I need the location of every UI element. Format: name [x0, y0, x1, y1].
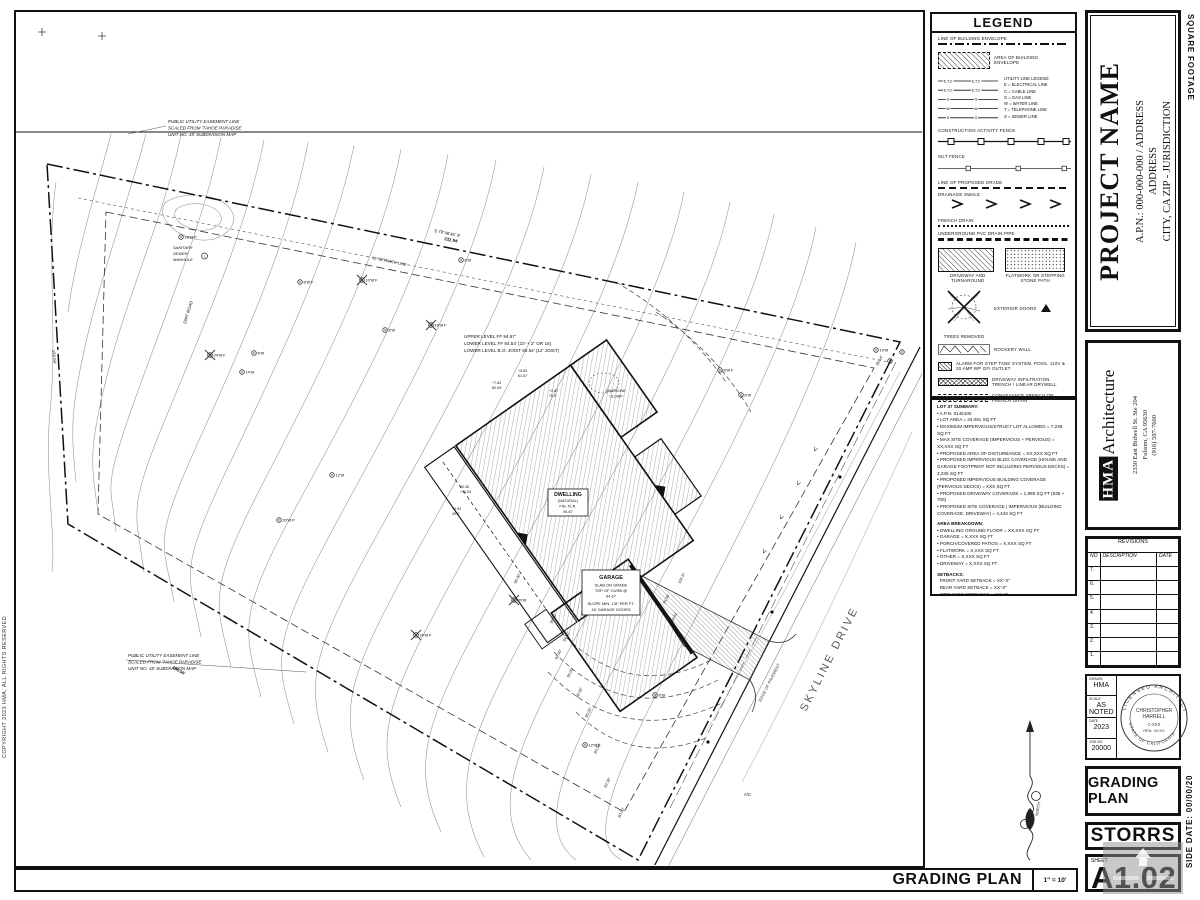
drawing-info-box: DRAWN HMA SCALE AS NOTED DATE 2023 JOB N…	[1085, 674, 1181, 760]
summary-item: • LOT AREA = 34,081 SQ FT	[937, 417, 1070, 424]
revisions-title: REVISIONS	[1088, 539, 1179, 553]
plan-label: S	[203, 255, 205, 259]
plan-label: >	[810, 445, 820, 454]
svg-text:REN. XX/XX: REN. XX/XX	[1143, 729, 1165, 733]
firm-box: HMA Architecture 2330 East Bidwell St. S…	[1085, 340, 1181, 530]
plan-label: SANITARY	[173, 245, 193, 250]
utility-line-tag: G	[947, 98, 950, 102]
revision-row: 3.	[1088, 623, 1179, 637]
legend-item-building-envelope-line: LINE OF BUILDING ENVELOPE	[932, 33, 1075, 45]
firm-phone: (916) 597-7600	[1151, 415, 1158, 456]
contour-lines	[48, 134, 912, 860]
plan-label: LOWER LEVEL B.O. JOIST 93.54' (12' JOIST…	[464, 348, 560, 353]
client-name-box: STORRS	[1085, 822, 1181, 850]
plan-label: +2.87	[549, 389, 558, 393]
plan-label: SCALED FROM 'TAHOE PARADISE	[128, 660, 202, 665]
plan-label: >	[759, 547, 769, 556]
plan-label: SEWER	[173, 251, 188, 256]
alarm-sample	[938, 362, 952, 371]
dashdot-line-sample	[938, 43, 1069, 45]
lot-summary-panel: LOT 37 SUMMARY: • A.P.N. 0145100 • LOT A…	[930, 398, 1077, 596]
building-envelope-line	[98, 212, 874, 812]
silt-fence-sample	[938, 165, 1071, 172]
plan-label: PUBLIC UTILITY EASEMENT LINE	[128, 653, 200, 658]
plan-label: 98.00'	[512, 572, 521, 584]
plan-label: 104.37	[677, 572, 686, 584]
address-line: ADDRESS	[1148, 147, 1159, 195]
plan-label: FIN. FL'R.	[559, 505, 576, 509]
plan-label: 49.9'	[452, 512, 460, 516]
legend-item-trees-doors: TREES REMOVED EXTERIOR DOORS	[932, 286, 1075, 339]
utility-line-tag: G	[975, 98, 978, 102]
tree-label: 6"Ø	[745, 394, 751, 398]
plan-label: 94.67	[563, 510, 573, 514]
utility-line-tag: E,T,C	[972, 89, 981, 93]
plan-label: 15' SETBACK LINE	[372, 255, 408, 267]
edge-label-square-footage: SQUARE FOOTAGE	[1186, 14, 1195, 101]
plan-label: EDGE OF PAVEMENT	[757, 662, 781, 702]
summary-title: LOT 37 SUMMARY:	[937, 404, 1070, 411]
north-arrow: NORTH	[1002, 712, 1058, 864]
plan-label: GARAGE	[599, 575, 623, 581]
summary-item: • PROPOSED SITE COVERAGE | IMPERVIOUS (B…	[937, 504, 1070, 517]
utility-line-tag: W	[974, 107, 978, 111]
legend-item-construction-fence: CONSTRUCTION ACTIVITY FENCE	[932, 125, 1075, 151]
plan-label: 88.00'	[574, 686, 583, 698]
job-field: JOB NO 20000	[1087, 739, 1116, 758]
sheet-title-box: GRADING PLAN	[1085, 766, 1181, 816]
area-item: • DWELLING GROUND FLOOR = XX,XXX SQ FT	[937, 528, 1070, 535]
utility-line-tag: E,T,C	[944, 79, 953, 83]
tree-label: 20"Ø	[518, 599, 527, 603]
tree-label: 10"Ø F	[366, 279, 379, 283]
revisions-table: REVISIONS NO DESCRIPTION DATE 7. 6. 5. 4…	[1085, 536, 1181, 668]
utility-line-tag: E,T,C	[972, 79, 981, 83]
setback-item: SIDE YARD SETBACKS = XX'-X"	[937, 592, 1070, 599]
plan-label: DIRT ROAD	[182, 300, 194, 324]
tree-label: 8"Ø	[465, 259, 471, 263]
summary-item: • MAX SITE COVERAGE (IMPERVIOUS + PERVIO…	[937, 437, 1070, 450]
plan-label: +10.04	[460, 490, 471, 494]
tree-label: 8"Ø F	[304, 281, 314, 285]
legend-title: LEGEND	[932, 14, 1075, 33]
property-boundary	[47, 164, 900, 860]
construction-fence-sample	[938, 137, 1071, 146]
legend-item-alarm: ALARM FOR STEP TANK SYSTEM, POSS. 110V &…	[932, 358, 1075, 371]
legend-item-surfaces: DRIVEWAY AND TURNAROUND FLATWORK OR STEP…	[932, 245, 1075, 283]
plan-label: 16' GARAGE DOORS	[591, 607, 631, 612]
scale-field: SCALE AS NOTED	[1087, 696, 1116, 718]
plan-label: >	[793, 479, 803, 488]
tree-removed-sample	[944, 289, 984, 329]
area-item: • PORCH/COVERED PATIOS = X,XXX SQ FT	[937, 541, 1070, 548]
legend-item-proposed-grade: LINE OF PROPOSED GRADE	[932, 177, 1075, 189]
tree-label: 8"Ø F	[724, 369, 734, 373]
drawing-scale: 1" = 10'	[1032, 870, 1076, 890]
utility-line-tag: E,T,C	[944, 89, 953, 93]
legend-item-rockery: ROCKERY WALL	[932, 341, 1075, 355]
area-item: • FLATWORK = X,XXX SQ FT	[937, 548, 1070, 555]
drawing-title: GRADING PLAN	[882, 870, 1032, 890]
tree-label: 18"Ø P	[185, 236, 198, 240]
plan-label: PUBLIC UTILITY EASEMENT LINE	[168, 119, 240, 124]
revision-row: 6.	[1088, 581, 1179, 595]
survey-tick	[38, 28, 106, 40]
revision-row: 1.	[1088, 651, 1179, 665]
legend-item-french-drain: FRENCH DRAIN	[932, 215, 1075, 228]
drawn-field: DRAWN HMA	[1087, 676, 1116, 696]
firm-name: Architecture	[1099, 370, 1119, 455]
plan-label: 60.36	[460, 485, 469, 489]
tree-label: 24"Ø F	[214, 354, 227, 358]
rockery-sample	[938, 344, 990, 355]
tree-label: 8"Ø	[389, 329, 395, 333]
utility-line-samples: E,T,CE,T,CE,T,CE,T,CGGWWSS	[938, 76, 1000, 122]
tree-label: 6"Ø	[258, 352, 264, 356]
col-description: DESCRIPTION	[1100, 553, 1157, 567]
north-label: NORTH	[1034, 801, 1041, 816]
setback-item: FRONT YARD SETBACK = XX'-X"	[937, 578, 1070, 585]
grading-plan-drawing: PUBLIC UTILITY EASEMENT LINESCALED FROM …	[14, 10, 925, 868]
plan-label: 90.00'	[565, 666, 574, 678]
revision-row: 4.	[1088, 609, 1179, 623]
apn-line: A.P.N.: 000-000-000 / ADDRESS	[1135, 100, 1146, 243]
legend-item-silt-fence: SILT FENCE	[932, 151, 1075, 177]
hatched-area-sample	[938, 52, 990, 69]
plan-label: SKYLINE DRIVE	[798, 605, 861, 713]
pvc-pipe-sample	[938, 238, 1069, 242]
city-line: CITY, CA ZIP - JURISDICTION	[1162, 101, 1173, 241]
tree-label: 14"Ø	[880, 349, 889, 353]
copyright-text: COPYRIGHT 2023 HMA, ALL RIGHTS RESERVED	[2, 616, 8, 758]
plan-label: UPPER LEVEL FF 94.67'	[464, 334, 516, 339]
tree-label: 18"Ø F	[435, 324, 448, 328]
legend-panel: LEGEND LINE OF BUILDING ENVELOPE AREA OF…	[930, 12, 1077, 398]
sheet-number: A1.02	[1091, 864, 1175, 892]
col-date: DATE	[1157, 553, 1179, 567]
tree-label: 12"Ø	[336, 474, 345, 478]
revision-row: 2.	[1088, 637, 1179, 651]
plan-label: +7.84	[492, 381, 501, 385]
plan-label: 92.00'	[553, 648, 562, 660]
tree-label: 24"Ø F	[420, 634, 433, 638]
sheet-number-box: SHEET A1.02	[1085, 854, 1181, 892]
plan-label: (NATURAL)	[558, 499, 579, 503]
tree-label: 20"Ø P	[283, 519, 296, 523]
plan-label: 150.04'	[51, 350, 57, 365]
project-title-box: PROJECT NAME A.P.N.: 000-000-000 / ADDRE…	[1085, 10, 1181, 332]
summary-item: • A.P.N. 0145100	[937, 411, 1070, 418]
area-item: • OTHER = X,XXX SQ FT	[937, 554, 1070, 561]
edge-label-side-date: SIDE DATE: 00/00/20	[1185, 775, 1194, 868]
summary-item: • PROPOSED DRIVEWAY COVERAGE = 1,995 SQ …	[937, 491, 1070, 504]
legend-item-pvc-pipe: UNDERGROUND PVC DRAIN PIPE	[932, 228, 1075, 242]
plan-label: TOP OF CURB @	[595, 588, 627, 593]
utility-line-tag: W	[946, 107, 950, 111]
plan-label: UNIT NO. 45' SUBDIVISION MAP	[128, 666, 196, 671]
flatwork-sample	[1005, 248, 1065, 272]
plan-label: +0.93	[452, 507, 461, 511]
plan-label: UNIT NO. 45' SUBDIVISION MAP	[168, 132, 236, 137]
site-plan-canvas: PUBLIC UTILITY EASEMENT LINESCALED FROM …	[16, 12, 922, 865]
exterior-door-symbol	[1040, 303, 1052, 313]
plan-label: 61.67'	[518, 374, 528, 378]
driveway-sample	[938, 248, 994, 272]
architect-stamp: LICENSED ARCHITECT STATE OF CALIFORNIA C…	[1117, 678, 1191, 756]
summary-item: • MAXIMUM IMPERVIOUS/STRUCT LOT ALLOWED …	[937, 424, 1070, 437]
summary-item: • PROPOSED IMPERVIOUS BLDG COVERAGE (HOU…	[937, 457, 1070, 477]
setbacks-title: SETBACKS:	[937, 572, 1070, 579]
plan-label: 60.54'	[492, 386, 502, 390]
col-no: NO	[1088, 553, 1101, 567]
revision-row: 7.	[1088, 567, 1179, 581]
plan-label: >	[776, 513, 786, 522]
plan-label: SLOPE MIN. 1/8" PER FT.	[588, 601, 635, 606]
infiltration-sample	[938, 378, 988, 386]
summary-item: • PROPOSED IMPERVIOUS BUILDING COVERAGE …	[937, 477, 1070, 490]
svg-text:HARRELL: HARRELL	[1142, 714, 1165, 720]
area-item: • GARAGE = X,XXX SQ FT	[937, 534, 1070, 541]
project-name: PROJECT NAME	[1095, 62, 1125, 281]
plan-label: CLUMP	[609, 395, 623, 399]
plan-label: MANHOLE	[173, 257, 193, 262]
plan-label: +5.83	[518, 369, 527, 373]
plan-label: LOWER LEVEL FF 84.54' (10' + 2" OR 16)	[464, 341, 552, 346]
legend-item-building-envelope-area: AREA OF BUILDING ENVELOPE	[932, 49, 1075, 69]
tree-label: 14"Ø	[246, 371, 255, 375]
firm-initials: HMA	[1100, 457, 1119, 501]
summary-item: • PROPOSED AREA OF DISTURBANCE = XX,XXX …	[937, 451, 1070, 458]
legend-item-infiltration: DRIVEWAY INFILTRATION TRENCH / LINEAR DR…	[932, 374, 1075, 387]
firm-address1: 2330 East Bidwell St. Ste 204	[1132, 396, 1139, 474]
plan-label: SLAB ON GRADE	[595, 583, 628, 588]
plan-label: MADRONE	[606, 389, 626, 393]
plan-label: 70.9'	[549, 394, 557, 398]
area-item: • DRIVEWAY = X,XXX SQ FT	[937, 561, 1070, 568]
setback-item: REAR YARD SETBACK = XX'-X"	[937, 585, 1070, 592]
area-breakdown-title: AREA BREAKDOWN:	[937, 521, 1070, 528]
legend-utility-lines: E,T,CE,T,CE,T,CE,T,CGGWWSS UTILITY LINE …	[932, 73, 1075, 122]
svg-text:C-XXX: C-XXX	[1147, 722, 1160, 727]
drainage-swale-sample	[938, 198, 1071, 210]
date-field: DATE 2023	[1087, 718, 1116, 738]
plan-label: A/C	[744, 792, 751, 797]
revision-row: 5.	[1088, 595, 1179, 609]
firm-address2: Folsom, CA 95630	[1142, 410, 1149, 459]
tree-label: 12"Ø F	[589, 744, 602, 748]
plan-label: SCALED FROM 'TAHOE PARADISE	[168, 126, 242, 131]
plan-label: DWELLING	[554, 492, 582, 498]
tree-label: 8"Ø	[659, 694, 665, 698]
drawing-title-bar: GRADING PLAN 1" = 10'	[14, 868, 1078, 892]
plan-label: 35.14'	[874, 354, 883, 366]
plan-label: 82.00'	[602, 776, 611, 788]
plan-label: 94.67	[606, 594, 617, 599]
legend-item-drainage-swale: DRAINAGE SWALE	[932, 189, 1075, 215]
